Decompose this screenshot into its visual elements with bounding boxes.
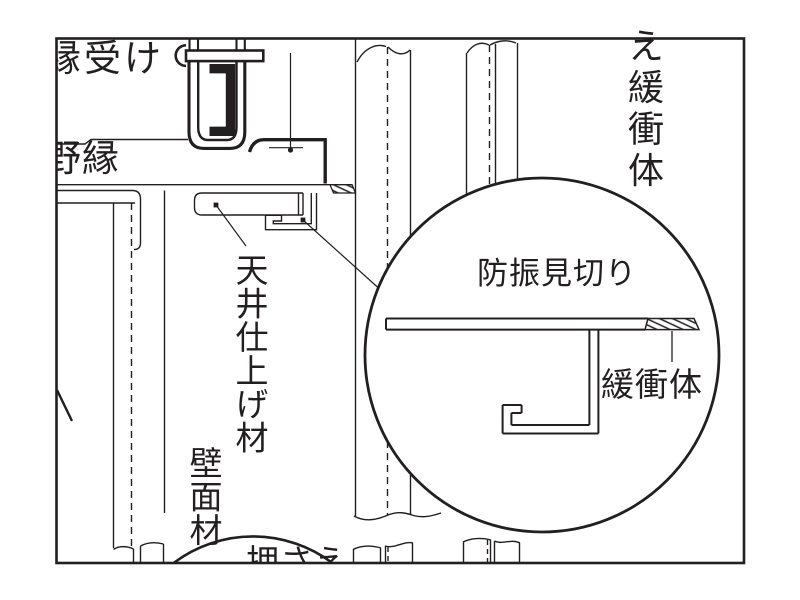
bottom-label-clip: 押さえ — [240, 543, 360, 562]
label-furring: 野縁 — [56, 140, 120, 177]
buffer-hatch-main — [330, 185, 356, 193]
label-wall-material: 壁面材 — [187, 446, 220, 547]
top-left-label-clip: 縁受け 野縁 — [56, 38, 216, 188]
buffer-hatch-detail — [645, 319, 699, 330]
ceiling-finish-panel — [195, 193, 304, 215]
label-ceiling-finish-material: 天井仕上げ材 — [233, 253, 266, 454]
label-presser: 押さえ — [246, 545, 348, 562]
label-vibration-isolation-trim: 防振見切り — [477, 259, 637, 290]
label-presser-buffer-column: え緩衝体 — [624, 27, 660, 193]
construction-detail-diagram: 縁受け 野縁 え緩衝体 天井仕上げ材 壁面材 押さえ 防振見切り 緩衝体 — [0, 0, 800, 600]
label-edge-receiver: 縁受け — [56, 40, 164, 77]
detail-circle — [365, 178, 719, 532]
label-buffer: 緩衝体 — [601, 368, 703, 401]
